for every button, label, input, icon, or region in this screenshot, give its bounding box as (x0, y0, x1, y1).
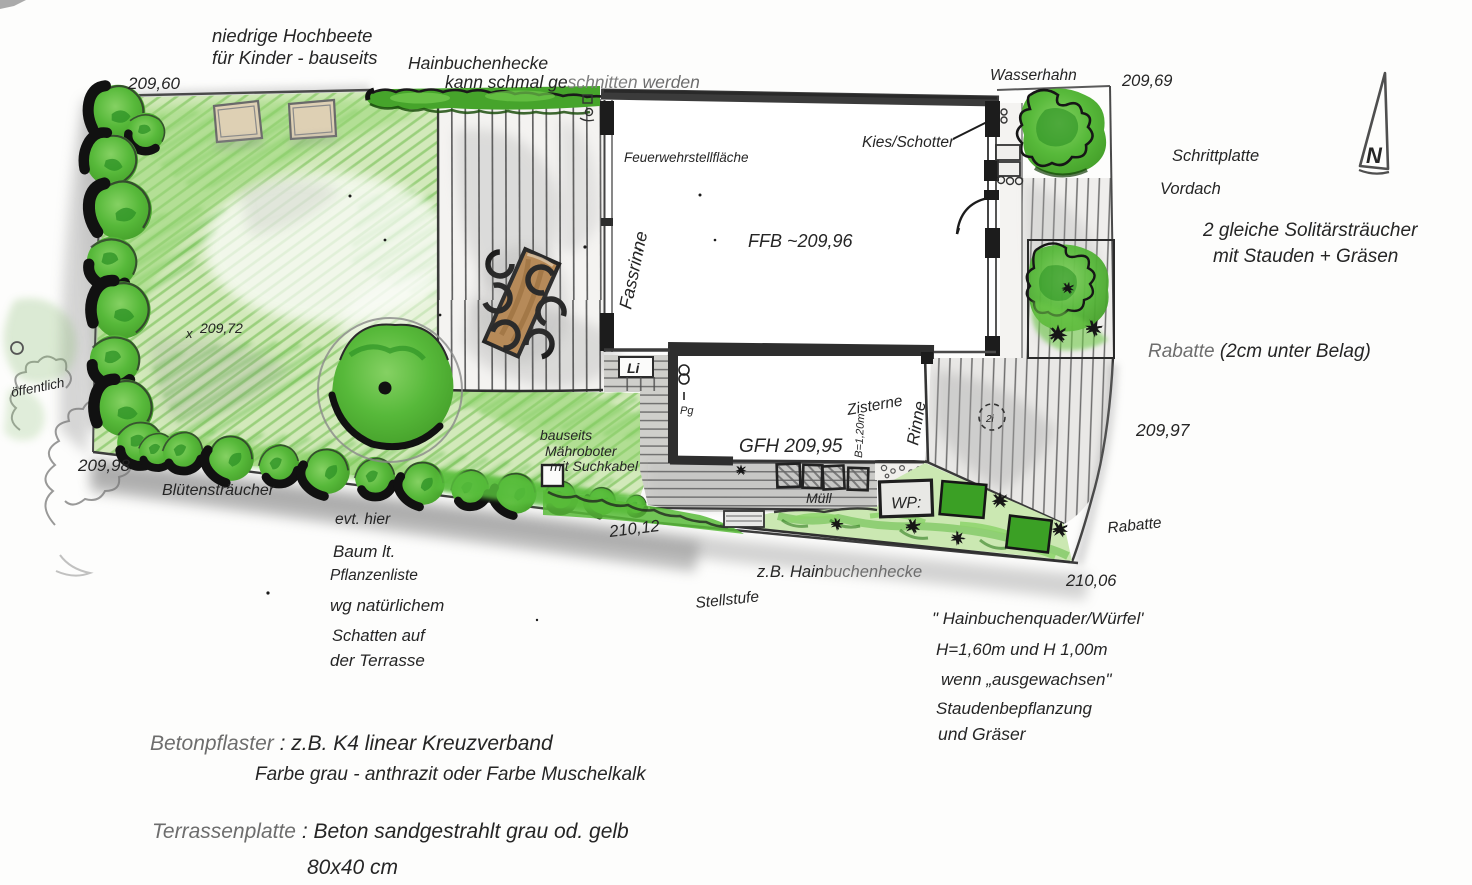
svg-text:Hainbuchenhecke: Hainbuchenhecke (408, 53, 548, 73)
svg-text:und Gräser: und Gräser (938, 724, 1027, 744)
svg-text:Schatten auf: Schatten auf (332, 627, 427, 645)
svg-text:Blütensträucher: Blütensträucher (162, 482, 275, 499)
svg-text:bauseits: bauseits (540, 427, 592, 443)
svg-text:209,60: 209,60 (127, 74, 181, 93)
svg-text:Mähroboter: Mähroboter (545, 443, 618, 459)
svg-text:209,69: 209,69 (1121, 72, 1172, 90)
svg-text:" Hainbuchenquader/Würfel': " Hainbuchenquader/Würfel' (932, 609, 1144, 628)
svg-text:niedrige Hochbeete: niedrige Hochbeete (212, 25, 372, 46)
svg-text:Feuerwehrstellfläche: Feuerwehrstellfläche (624, 150, 749, 165)
svg-text:Rabatte (2cm unter Belag): Rabatte (2cm unter Belag) (1148, 341, 1371, 362)
svg-text:Farbe grau - anthrazit oder Fa: Farbe grau - anthrazit oder Farbe Musche… (255, 764, 647, 785)
svg-text:mit Stauden + Gräsen: mit Stauden + Gräsen (1213, 246, 1398, 267)
svg-text:GFH 209,95: GFH 209,95 (739, 436, 843, 457)
svg-text:x: x (185, 326, 193, 341)
svg-text:209,72: 209,72 (199, 320, 243, 336)
svg-text:Vordach: Vordach (1160, 180, 1221, 198)
svg-text:Wasserhahn: Wasserhahn (990, 67, 1077, 84)
svg-text:evt. hier: evt. hier (335, 511, 391, 528)
svg-text:2 gleiche Solitärsträucher: 2 gleiche Solitärsträucher (1202, 220, 1418, 241)
svg-text:N: N (1366, 143, 1383, 168)
svg-text:Kies/Schotter: Kies/Schotter (862, 134, 955, 151)
svg-text:H=1,60m und H 1,00m: H=1,60m und H 1,00m (936, 640, 1108, 659)
svg-text:209,97: 209,97 (1135, 420, 1191, 440)
svg-text:Betonpflaster : z.B. K4 li: Betonpflaster : z.B. K4 linear Kreuzverb… (150, 732, 554, 755)
svg-text:Li: Li (627, 360, 641, 376)
svg-text:Staudenbepflanzung: Staudenbepflanzung (936, 699, 1093, 718)
svg-text:Schrittplatte: Schrittplatte (1172, 147, 1259, 165)
svg-text:Müll: Müll (806, 490, 833, 506)
svg-text:80x40 cm: 80x40 cm (307, 856, 398, 879)
svg-text:210,06: 210,06 (1065, 572, 1117, 590)
svg-text:mit Suchkabel: mit Suchkabel (550, 458, 639, 474)
svg-text:wenn „ausgewachsen": wenn „ausgewachsen" (941, 670, 1112, 689)
svg-text:B=1,20m: B=1,20m (853, 413, 867, 458)
svg-text:Pflanzenliste: Pflanzenliste (330, 567, 418, 584)
svg-text:wg natürlichem: wg natürlichem (330, 596, 444, 615)
svg-text:für Kinder - bauseits: für Kinder - bauseits (212, 47, 378, 68)
svg-text:der Terrasse: der Terrasse (330, 651, 425, 670)
svg-text:z.B. Hainbuchenhecke: z.B. Hainbuchenhecke (756, 563, 922, 581)
svg-text:209,98: 209,98 (77, 456, 131, 475)
svg-text:Baum lt.: Baum lt. (333, 542, 395, 561)
svg-text:Terrassenplatte : Beton sand: Terrassenplatte : Beton sandgestrahlt gr… (152, 820, 629, 843)
svg-text:Pg: Pg (680, 405, 694, 417)
svg-text:2i: 2i (985, 414, 995, 425)
svg-text:WP:: WP: (891, 494, 922, 512)
svg-text:kann schmal geschnitten werden: kann schmal geschnitten werden (445, 72, 700, 92)
svg-text:FFB ~209,96: FFB ~209,96 (748, 231, 854, 251)
